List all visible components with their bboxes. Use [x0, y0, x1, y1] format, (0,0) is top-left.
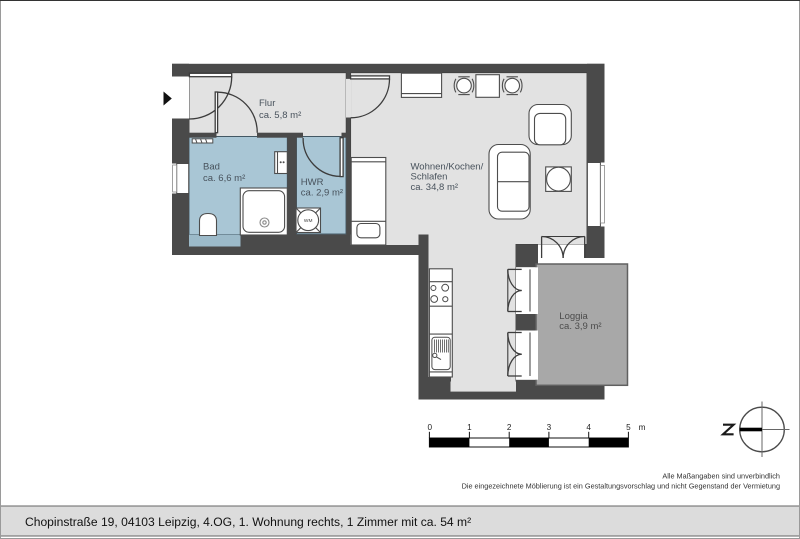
svg-text:Alle Maßangaben sind unverbind: Alle Maßangaben sind unverbindlich	[662, 472, 780, 481]
svg-text:5: 5	[626, 423, 631, 432]
svg-text:Flur: Flur	[259, 98, 275, 109]
svg-text:WM: WM	[304, 218, 313, 224]
svg-text:ca. 3,9 m²: ca. 3,9 m²	[559, 321, 601, 332]
svg-text:HWR: HWR	[301, 177, 324, 188]
svg-text:ca. 34,8 m²: ca. 34,8 m²	[411, 182, 459, 193]
svg-text:1: 1	[467, 423, 472, 432]
svg-text:ca. 2,9 m²: ca. 2,9 m²	[301, 188, 343, 199]
svg-text:3: 3	[547, 423, 552, 432]
svg-text:0: 0	[428, 423, 433, 432]
svg-text:m: m	[639, 423, 646, 432]
svg-text:Chopinstraße 19, 04103 Leipzig: Chopinstraße 19, 04103 Leipzig, 4.OG, 1.…	[25, 515, 471, 529]
svg-text:4: 4	[586, 423, 591, 432]
svg-text:2: 2	[507, 423, 512, 432]
svg-text:Bad: Bad	[203, 161, 220, 172]
svg-text:ca. 6,6 m²: ca. 6,6 m²	[203, 173, 245, 184]
svg-text:Schlafen: Schlafen	[411, 172, 448, 183]
svg-text:ca. 5,8 m²: ca. 5,8 m²	[259, 110, 301, 121]
svg-text:Die eingezeichnete Möblierung: Die eingezeichnete Möblierung ist ein Ge…	[462, 481, 780, 490]
